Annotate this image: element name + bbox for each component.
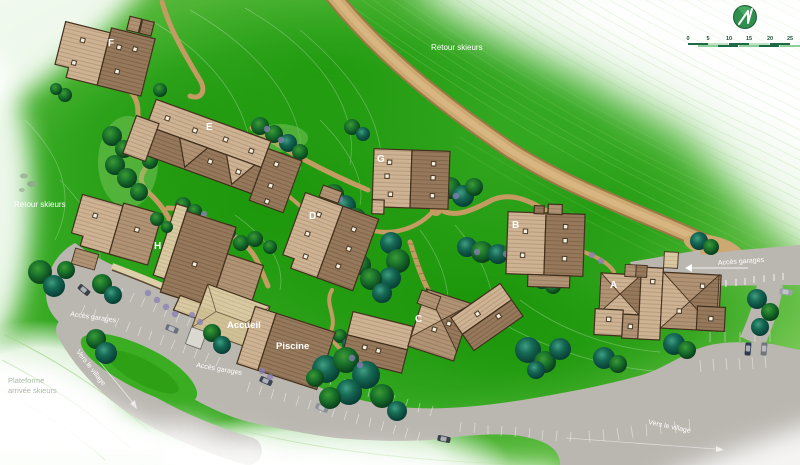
svg-text:5: 5 [706,36,709,42]
svg-text:20: 20 [767,36,773,42]
svg-text:G: G [377,154,385,165]
svg-text:Retour skieurs: Retour skieurs [14,200,66,209]
svg-text:Plateforme: Plateforme [8,376,44,385]
svg-text:Retour skieurs: Retour skieurs [431,43,483,52]
svg-text:B: B [512,220,519,231]
svg-text:A: A [610,280,617,291]
svg-text:D: D [309,211,316,222]
svg-text:arrivée skieurs: arrivée skieurs [8,386,57,395]
svg-text:F: F [108,38,114,49]
svg-text:H: H [154,241,161,252]
svg-text:E: E [206,122,213,133]
svg-text:15: 15 [746,36,752,42]
svg-text:Piscine: Piscine [276,341,309,352]
svg-text:C: C [415,314,422,325]
svg-text:10: 10 [726,36,732,42]
svg-text:Accueil: Accueil [227,320,261,331]
svg-text:25: 25 [787,36,793,42]
svg-text:0: 0 [686,36,689,42]
